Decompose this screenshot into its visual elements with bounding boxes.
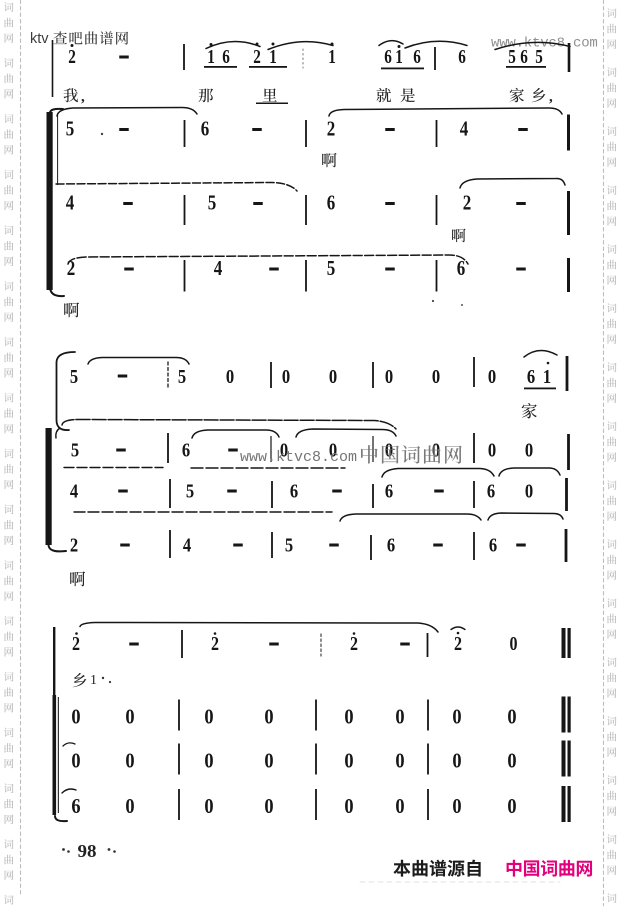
svg-text:5: 5 [71,440,79,462]
svg-text:0: 0 [344,749,353,773]
svg-text:4: 4 [70,481,78,503]
svg-text:5: 5 [285,535,293,557]
svg-text:6: 6 [385,481,393,503]
svg-text:2: 2 [70,535,78,557]
svg-text:0: 0 [452,705,461,729]
svg-text:2: 2 [463,191,472,215]
svg-text:0: 0 [395,705,404,729]
svg-text:www.ktvc8.com: www.ktvc8.com [491,36,598,52]
svg-text:6: 6 [387,535,395,557]
svg-text:0: 0 [125,749,134,773]
svg-text:2: 2 [350,634,358,655]
svg-text:4: 4 [214,256,223,280]
svg-text:2: 2 [211,634,219,655]
svg-text:6: 6 [487,481,495,503]
svg-text:1: 1 [395,47,403,68]
svg-text:0: 0 [385,366,393,388]
svg-text:6: 6 [527,366,535,388]
svg-text:,: , [549,89,553,105]
svg-text:1: 1 [207,47,215,68]
svg-text:2: 2 [253,47,261,68]
svg-text:5: 5 [535,47,543,68]
svg-text:6: 6 [413,47,421,68]
svg-text:4: 4 [66,191,75,215]
svg-text:6: 6 [182,440,190,462]
svg-text:ktv: ktv [30,31,49,47]
svg-text:2: 2 [68,47,76,68]
svg-text:0: 0 [344,705,353,729]
svg-text:0: 0 [344,794,353,818]
svg-text:0: 0 [432,366,440,388]
svg-text:6: 6 [290,481,298,503]
svg-text:5: 5 [327,256,336,280]
svg-text:6: 6 [520,47,528,68]
svg-text:5: 5 [208,191,217,215]
svg-text:,: , [81,89,85,105]
svg-text:6: 6 [201,117,210,141]
svg-text:0: 0 [329,366,337,388]
svg-text:5: 5 [186,481,194,503]
svg-text:6: 6 [489,535,497,557]
svg-text:2: 2 [454,634,462,655]
svg-text:www.ktvc8.com: www.ktvc8.com [240,449,357,466]
svg-text:2: 2 [72,634,80,655]
svg-text:0: 0 [226,366,234,388]
svg-text:0: 0 [452,794,461,818]
svg-text:0: 0 [452,749,461,773]
svg-text:6: 6 [327,191,336,215]
svg-text:5: 5 [508,47,516,68]
svg-text:0: 0 [395,794,404,818]
svg-text:2: 2 [327,117,336,141]
svg-text:0: 0 [395,749,404,773]
svg-text:0: 0 [264,705,273,729]
svg-text:1: 1 [328,47,336,68]
svg-text:0: 0 [125,705,134,729]
svg-text:0: 0 [525,440,533,462]
svg-text:5: 5 [66,117,75,141]
svg-text:0: 0 [71,705,80,729]
svg-text:0: 0 [385,440,393,462]
svg-text:0: 0 [488,366,496,388]
svg-text:0: 0 [264,794,273,818]
svg-text:0: 0 [525,481,533,503]
svg-text:6: 6 [222,47,230,68]
svg-text:0: 0 [510,634,518,655]
svg-text:0: 0 [507,794,516,818]
svg-text:0: 0 [204,705,213,729]
svg-text:1: 1 [269,47,277,68]
svg-text:6: 6 [71,794,80,818]
svg-text:0: 0 [507,749,516,773]
svg-text:0: 0 [71,749,80,773]
svg-text:4: 4 [460,117,469,141]
svg-text:0: 0 [507,705,516,729]
svg-text:0: 0 [282,366,290,388]
svg-text:0: 0 [204,749,213,773]
svg-text:0: 0 [204,794,213,818]
svg-text:1: 1 [90,673,97,688]
svg-text:0: 0 [488,440,496,462]
svg-text:4: 4 [183,535,191,557]
svg-text:5: 5 [178,366,186,388]
svg-text:0: 0 [125,794,134,818]
svg-text:6: 6 [384,47,392,68]
svg-text:0: 0 [264,749,273,773]
svg-text:1: 1 [543,366,551,388]
svg-text:98: 98 [78,841,97,861]
svg-text:6: 6 [458,47,466,68]
svg-text:5: 5 [70,366,78,388]
